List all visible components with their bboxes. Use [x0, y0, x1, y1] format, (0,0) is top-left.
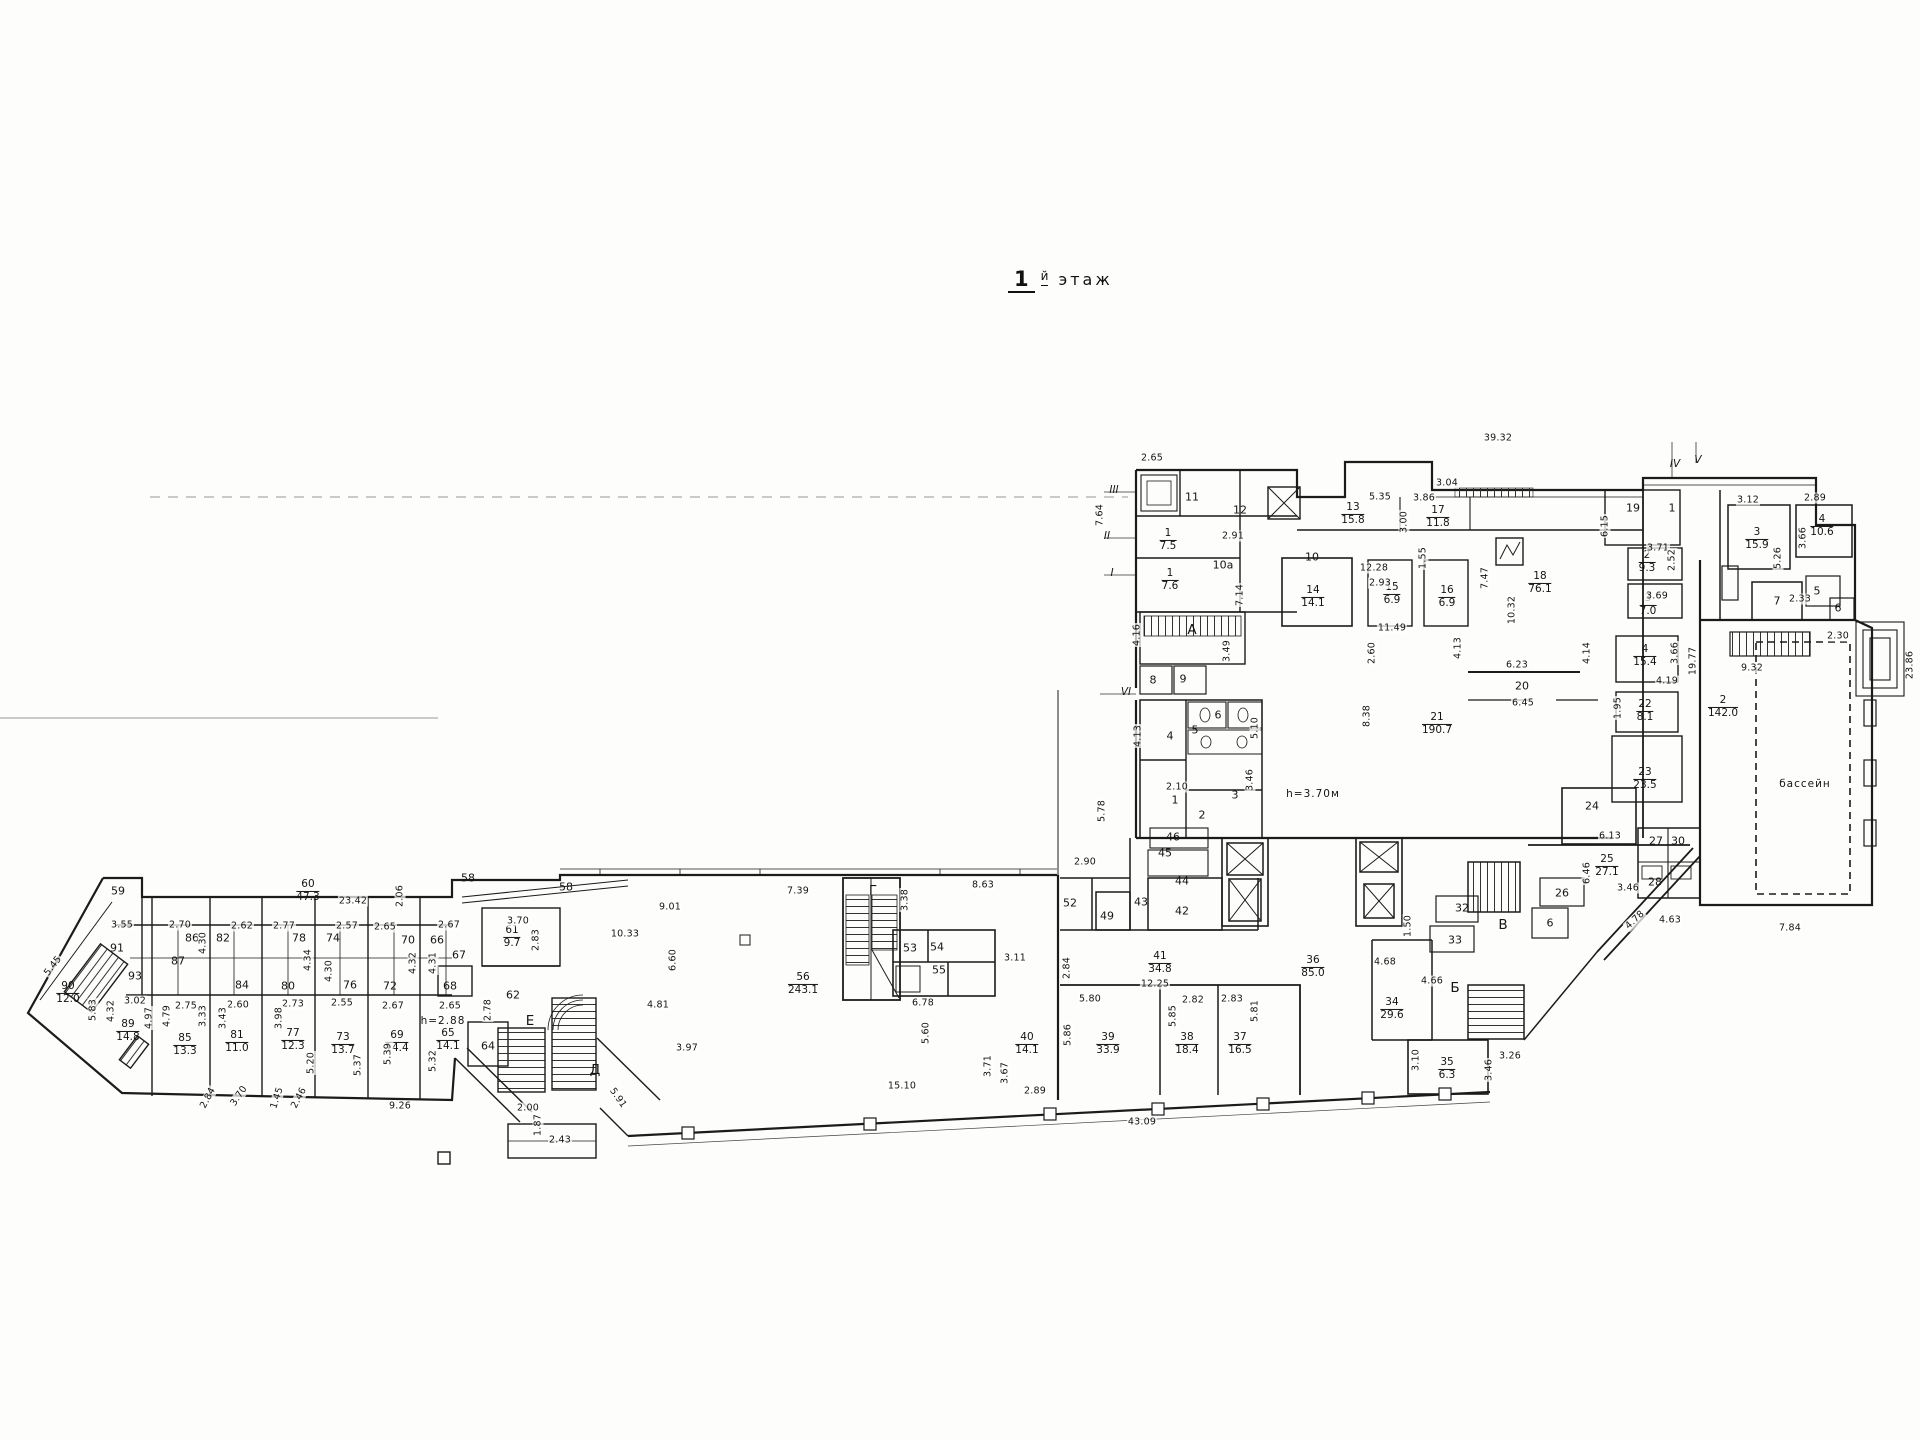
- fixture-icon: [1201, 736, 1211, 748]
- floor-plan-drawing: [0, 0, 1920, 1440]
- central-hall: [560, 869, 1057, 1000]
- right-lower-region: [1430, 788, 1700, 1040]
- floor-suffix: й: [1041, 268, 1049, 286]
- shaft-icon: [1268, 487, 1300, 519]
- elevator-icon: [1360, 842, 1398, 872]
- elevator-icon: [1229, 879, 1261, 921]
- floor-number: 1: [1008, 268, 1035, 293]
- sheet-title: 1 й этаж: [1008, 268, 1113, 293]
- lower-middle-block: [1060, 828, 1488, 1095]
- elevator-core-right: [1356, 838, 1402, 926]
- outdoor-step-icon: [119, 1036, 148, 1068]
- stair-E-icon: [498, 1028, 545, 1092]
- fixture-icon: [1200, 708, 1210, 722]
- floor-plan-sheet: 1 й этаж 9012.08914.88513.38111.07712.37…: [0, 0, 1920, 1440]
- upper-block-rooms: [1136, 470, 1816, 838]
- pool-outline: [1756, 642, 1850, 894]
- pool-steps-icon: [1730, 632, 1810, 656]
- stair-D-icon: [552, 998, 596, 1090]
- vent-icon: [1500, 542, 1520, 559]
- pool-wing: [1720, 490, 1904, 894]
- elevator-icon: [1227, 843, 1263, 875]
- elevator-icon: [1364, 884, 1394, 918]
- fixture-icon: [1237, 736, 1247, 748]
- stair-B-icon: [1468, 985, 1524, 1039]
- outer-walls: [28, 462, 1872, 1136]
- fixture-icon: [1238, 708, 1248, 722]
- floor-word: этаж: [1058, 268, 1112, 292]
- stair-V-icon: [1468, 862, 1520, 912]
- entry-stairs: [64, 944, 660, 1164]
